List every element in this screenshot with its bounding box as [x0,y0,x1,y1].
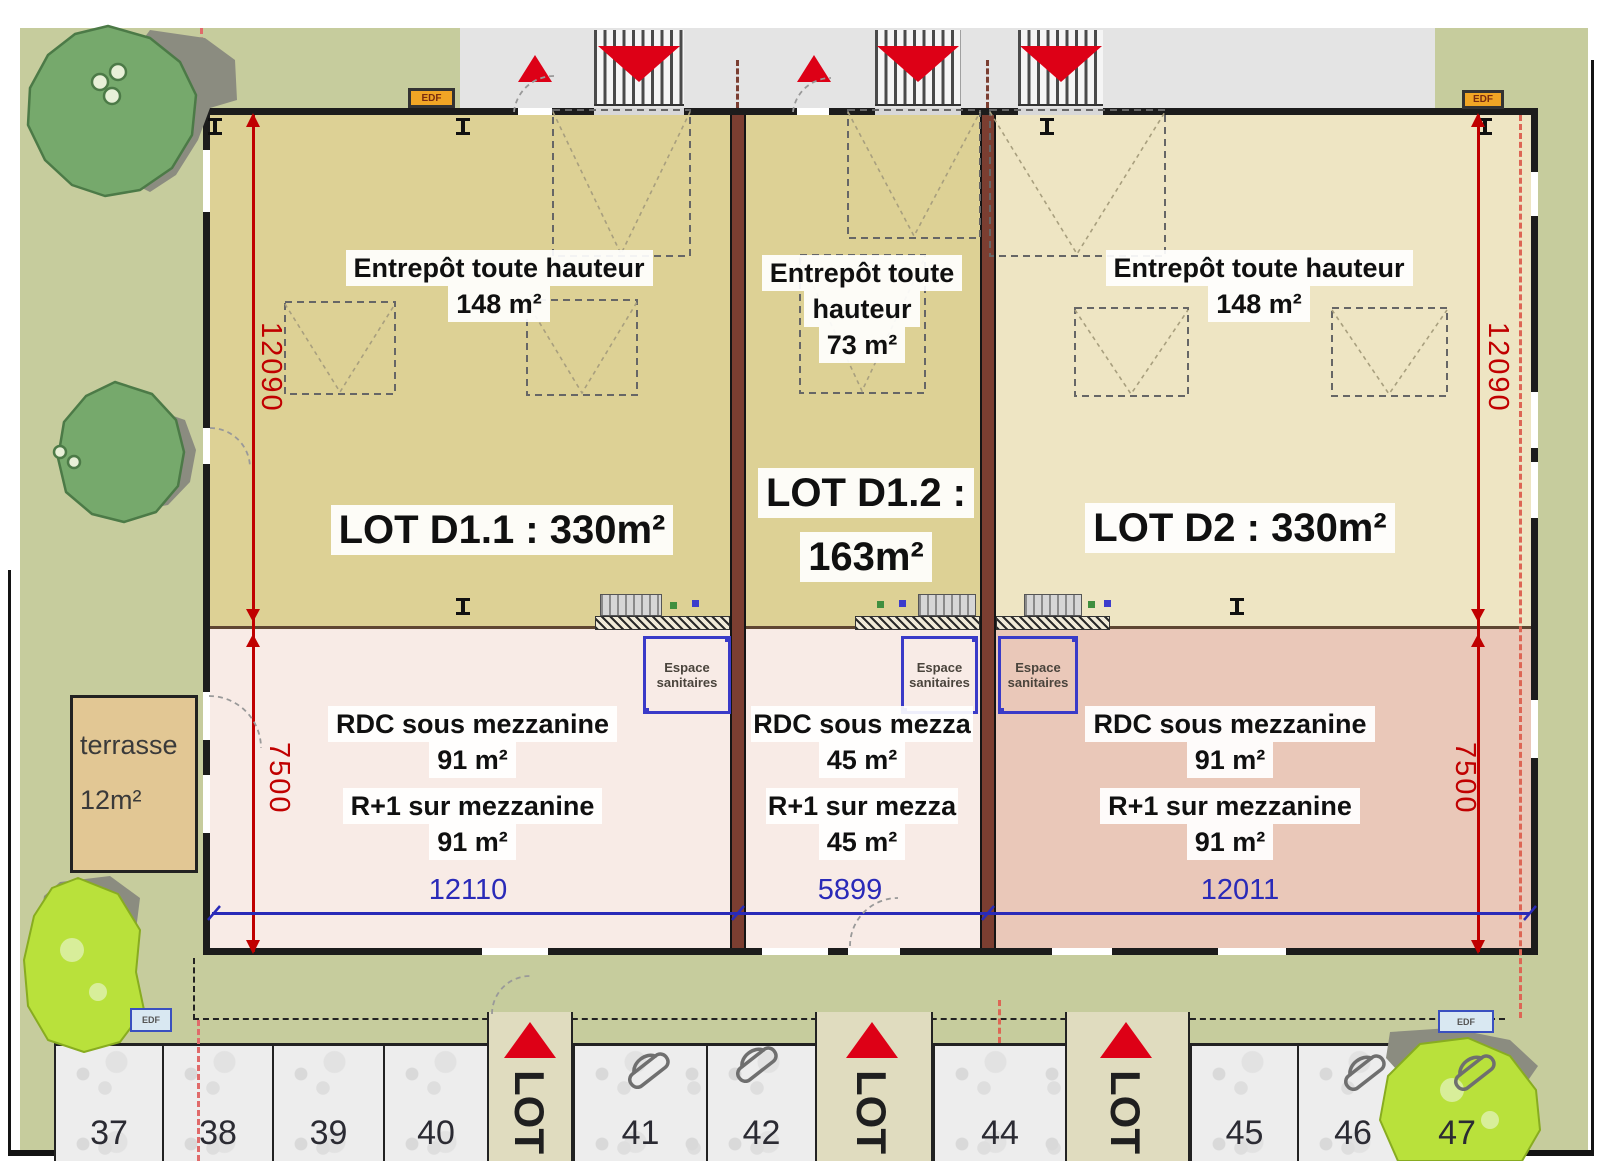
utility-symbol-icon [899,600,906,607]
door-opening [518,108,552,115]
mezz-dimension-right: 7500 [1448,742,1481,815]
lot-title-d12: LOT D1.2 : 163m² [750,468,982,582]
rdc-label: RDC sous mezzanine [1085,706,1374,742]
door-opening [203,692,210,740]
window [1531,392,1538,448]
lot-title-text: LOT D1.1 : 330m² [331,505,674,555]
column-mark-icon [456,118,470,135]
r1-area: 45 m² [819,824,906,860]
window [1531,700,1538,758]
staircase-icon [600,594,662,616]
column-mark-icon [456,598,470,615]
parking-number: 46 [1299,1114,1407,1153]
dimension-line-left [252,115,255,952]
r1-area: 91 m² [429,824,516,860]
vehicle-entrance-arrow-icon [877,46,959,82]
warehouse-name: Entrepôt toute hauteur [1106,250,1413,286]
plan-frame-left [8,570,11,1153]
walkway-lot-label: LOT [505,1070,553,1154]
mezzanine-label-d12: RDC sous mezza 45 m² R+1 sur mezza 45 m² [748,706,976,860]
mezzanine-label-d11: RDC sous mezzanine 91 m² R+1 sur mezzani… [280,706,665,860]
sanitary-room: Espace sanitaires [901,636,978,714]
width-dimension-d11: 12110 [398,874,538,907]
utility-symbol-icon [1088,601,1095,608]
utility-marker-label: EDF [1473,94,1493,105]
parking-space: 47 [1407,1043,1507,1161]
utility-marker-label: EDF [1457,1017,1475,1027]
parking-space: 40 [383,1043,489,1161]
mezz-dimension-left: 7500 [262,742,295,815]
terrace-area-value: 12m² [80,785,142,816]
wall-axis-dash [986,60,989,108]
door-opening [848,948,900,955]
utility-marker-label: EDF [422,93,442,104]
r1-label: R+1 sur mezza [766,788,958,824]
parking-space: 41 [573,1043,708,1161]
window [1531,172,1538,216]
floor-plan: 37 38 39 40 41 42 44 45 46 47 [0,0,1600,1161]
wall-axis-dash [736,60,739,108]
mezzanine-stair-band [996,616,1110,630]
height-dimension-right: 12090 [1481,322,1514,413]
vehicle-entrance-arrow-icon [1020,46,1102,82]
rdc-label: RDC sous mezza [751,706,973,742]
warehouse-name: Entrepôt toute [762,255,962,291]
parking-number: 44 [935,1114,1065,1153]
window [203,150,210,212]
utility-symbol-icon [692,600,699,607]
walkway-lot-label: LOT [1101,1070,1149,1154]
utility-marker: EDF [1462,90,1504,109]
axis-centerline [200,28,203,108]
window [1052,948,1112,955]
parking-number: 39 [274,1114,383,1153]
mezzanine-stair-band [855,616,980,630]
width-dimension-d2: 12011 [1170,874,1310,907]
rdc-area: 45 m² [819,742,906,778]
pedestrian-entrance-arrow-icon [797,55,831,82]
warehouse-name: Entrepôt toute hauteur [346,250,653,286]
window [203,775,210,833]
warehouse-area: 148 m² [448,286,550,322]
r1-label: R+1 sur mezzanine [1100,788,1360,824]
r1-label: R+1 sur mezzanine [343,788,603,824]
dimension-line-right [1477,115,1480,952]
parking-number: 42 [708,1114,815,1153]
pedestrian-entrance-arrow-icon [518,55,552,82]
rdc-label: RDC sous mezzanine [328,706,617,742]
sanitary-label: sanitaires [1008,675,1069,690]
warehouse-area: 148 m² [1208,286,1310,322]
window [203,428,210,464]
width-dimension-d12: 5899 [780,874,920,907]
dimension-line-bottom [212,912,1530,915]
party-wall [980,115,996,948]
lot-title-text: LOT D2 : 330m² [1085,503,1394,553]
garage-door-opening [594,108,684,115]
utility-symbol-icon [1104,600,1111,607]
sanitary-label: Espace [1015,660,1061,675]
height-dimension-left: 12090 [254,322,287,413]
lot-title-d2: LOT D2 : 330m² [1055,503,1425,553]
parking-number: 45 [1192,1114,1297,1153]
axis-centerline [998,1000,1001,1043]
terrace-label: terrasse [80,730,178,761]
utility-marker: EDF [1438,1010,1494,1033]
property-line [193,958,195,1020]
parking-space: 46 [1297,1043,1409,1161]
parking-number: 38 [164,1114,272,1153]
warehouse-area: 73 m² [819,327,906,363]
warehouse-name: hauteur [804,291,919,327]
walkway-arrow-icon [504,1022,556,1058]
sanitary-label: Espace [664,660,710,675]
parking-space: 42 [706,1043,817,1161]
sanitary-label: sanitaires [909,675,970,690]
walkway-arrow-icon [846,1022,898,1058]
garage-door-opening [875,108,961,115]
utility-marker: EDF [408,88,455,108]
utility-marker-label: EDF [142,1015,160,1025]
axis-centerline [1519,115,1522,1018]
column-mark-icon [1230,598,1244,615]
column-mark-icon [1478,118,1492,135]
lot-title-text: LOT D1.2 : [758,468,974,518]
window [482,948,548,955]
parking-number: 47 [1409,1114,1505,1153]
parking-space: 38 [162,1043,274,1161]
party-wall [730,115,746,948]
rdc-area: 91 m² [1187,742,1274,778]
sanitary-label: sanitaires [657,675,718,690]
window [1218,948,1286,955]
staircase-icon [1024,594,1082,616]
parking-number: 41 [575,1114,706,1153]
sanitary-room: Espace sanitaires [998,636,1078,714]
vehicle-entrance-arrow-icon [598,46,680,82]
window [1531,462,1538,518]
utility-symbol-icon [877,601,884,608]
parking-space: 44 [933,1043,1067,1161]
utility-marker: EDF [130,1008,172,1032]
garage-door-opening [1018,108,1103,115]
mezzanine-label-d2: RDC sous mezzanine 91 m² R+1 sur mezzani… [1035,706,1425,860]
warehouse-label-d11: Entrepôt toute hauteur 148 m² [315,250,683,322]
window [762,948,828,955]
warehouse-label-d12: Entrepôt toute hauteur 73 m² [762,255,962,363]
parking-space: 45 [1190,1043,1299,1161]
column-mark-icon [1040,118,1054,135]
door-opening [797,108,829,115]
plan-frame-right [1591,60,1594,1153]
lot-title-text: 163m² [800,532,932,582]
walkway-arrow-icon [1100,1022,1152,1058]
mezzanine-stair-band [595,616,730,630]
r1-area: 91 m² [1187,824,1274,860]
column-mark-icon [208,118,222,135]
sanitary-label: Espace [917,660,963,675]
utility-symbol-icon [670,602,677,609]
lot-title-d11: LOT D1.1 : 330m² [312,505,692,555]
parking-number: 40 [385,1114,487,1153]
warehouse-label-d2: Entrepôt toute hauteur 148 m² [1075,250,1443,322]
walkway-lot-label: LOT [847,1070,895,1154]
sanitary-room: Espace sanitaires [643,636,731,714]
staircase-icon [918,594,976,616]
rdc-area: 91 m² [429,742,516,778]
parking-space: 37 [54,1043,164,1161]
terrace-area [70,695,198,873]
parking-number: 37 [56,1114,162,1153]
parking-space: 39 [272,1043,385,1161]
